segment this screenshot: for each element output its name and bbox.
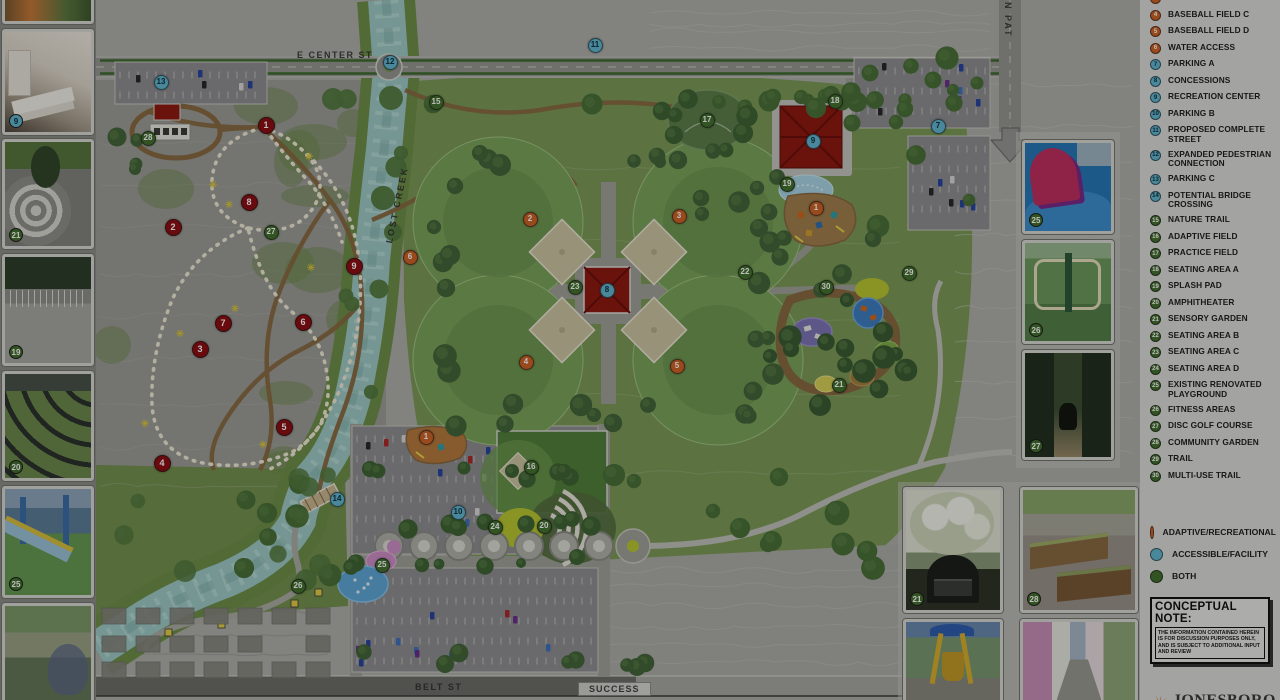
legend-item-16: 16ADAPTIVE FIELD [1150,232,1276,243]
disc-golf-hole-marker-7: 7 [215,315,232,332]
photo-badge: 21 [9,228,23,242]
legend-item-13: 13PARKING C [1150,174,1276,185]
legend-item-number: 20 [1150,298,1161,309]
map-marker-22: 22 [738,265,753,280]
legend-item-label: PARKING A [1168,59,1272,69]
map-marker-20: 20 [537,519,552,534]
photo-adult-changing-room: 9 [2,29,94,135]
disc-golf-hole-marker-6: 6 [295,314,312,331]
legend-item-19: 19SPLASH PAD [1150,281,1276,292]
legend-item-number: 19 [1150,281,1161,292]
map-marker-13: 13 [154,75,169,90]
photo-badge: 21 [910,592,924,606]
legend-item-26: 26FITNESS AREAS [1150,405,1276,416]
legend-item-number: 28 [1150,438,1161,449]
legend-item-label: PARKING C [1168,174,1272,184]
photo-badge: 28 [1027,592,1041,606]
legend-item-number: 27 [1150,421,1161,432]
legend-item-29: 29TRAIL [1150,454,1276,465]
legend-item-label: EXPANDED PEDESTRIAN CONNECTION [1168,150,1272,169]
photo-splash-fountain: 19 [2,254,94,366]
legend-item-22: 22SEATING AREA B [1150,331,1276,342]
photo-garden-landscape [2,603,94,700]
map-marker-24: 24 [488,520,503,535]
photo-community-garden-beds: 28 [1020,487,1138,613]
photo-badge: 26 [1029,323,1043,337]
jonesboro-logo-icon [1150,690,1169,700]
legend-item-number: 16 [1150,232,1161,243]
photo-blossom-trail [1020,619,1138,700]
legend-item-number: 14 [1150,191,1161,202]
photo-renovated-playground: 25 [1022,140,1114,234]
legend-item-17: 17PRACTICE FIELD [1150,248,1276,259]
map-marker-21: 21 [832,378,847,393]
legend-panel: 3BASEBALL FIELD B4BASEBALL FIELD C5BASEB… [1140,0,1280,700]
map-marker-2: 2 [523,212,538,227]
legend-item-label: NATURE TRAIL [1168,215,1272,225]
legend-item-number: 7 [1150,59,1161,70]
photo-badge: 25 [9,577,23,591]
legend-key-label: ADAPTIVE/RECREATIONAL [1163,527,1276,537]
legend-item-label: BASEBALL FIELD C [1168,10,1272,20]
map-marker-6: 6 [403,250,418,265]
legend-item-label: MULTI-USE TRAIL [1168,471,1272,481]
photo-accessible-swing [903,619,1003,700]
map-marker-27: 27 [264,225,279,240]
disc-golf-hole-marker-3: 3 [192,341,209,358]
legend-item-5: 5BASEBALL FIELD D [1150,26,1276,37]
legend-item-11: 11PROPOSED COMPLETE STREET [1150,125,1276,144]
legend-key-dot [1150,548,1163,561]
legend-color-key: ADAPTIVE/RECREATIONALACCESSIBLE/FACILITY… [1150,526,1276,583]
photo-playground-slide: 25 [2,486,94,598]
legend-key-row: ADAPTIVE/RECREATIONAL [1150,526,1276,539]
legend-item-number: 11 [1150,125,1161,136]
legend-item-number: 17 [1150,248,1161,259]
legend-item-label: ADAPTIVE FIELD [1168,232,1272,242]
legend-item-6: 6WATER ACCESS [1150,43,1276,54]
map-marker-29: 29 [902,266,917,281]
map-marker-28: 28 [141,131,156,146]
photo-badge: 9 [9,114,23,128]
legend-item-number: 8 [1150,76,1161,87]
jonesboro-logo-text: JONESBORO [1173,692,1276,700]
legend-item-number: 10 [1150,109,1161,120]
photo-badge: 20 [9,460,23,474]
map-marker-15: 15 [429,95,444,110]
legend-item-number: 22 [1150,331,1161,342]
map-marker-23: 23 [568,280,583,295]
legend-item-label: SEATING AREA B [1168,331,1272,341]
legend-item-label: SEATING AREA D [1168,364,1272,374]
legend-item-label: CONCESSIONS [1168,76,1272,86]
photo-sensory-path: 21 [2,139,94,249]
legend-item-number: 21 [1150,314,1161,325]
legend-item-3: 3BASEBALL FIELD B [1150,0,1276,4]
conceptual-note-body: THE INFORMATION CONTAINED HEREIN IS FOR … [1155,627,1265,659]
legend-key-label: BOTH [1172,571,1196,581]
legend-item-9: 9RECREATION CENTER [1150,92,1276,103]
legend-item-number: 12 [1150,150,1161,161]
legend-item-number: 6 [1150,43,1161,54]
legend-item-label: DISC GOLF COURSE [1168,421,1272,431]
legend-key-label: ACCESSIBLE/FACILITY [1172,549,1268,559]
map-marker-4: 4 [519,355,534,370]
legend-item-number: 3 [1150,0,1161,4]
legend-key-row: BOTH [1150,570,1276,583]
map-marker-5: 5 [670,359,685,374]
legend-item-23: 23SEATING AREA C [1150,347,1276,358]
legend-list: 3BASEBALL FIELD B4BASEBALL FIELD C5BASEB… [1150,0,1276,482]
legend-item-label: POTENTIAL BRIDGE CROSSING [1168,191,1272,210]
legend-item-number: 30 [1150,471,1161,482]
legend-item-label: SPLASH PAD [1168,281,1272,291]
map-marker-1: 1 [419,430,434,445]
legend-item-label: SEATING AREA A [1168,265,1272,275]
photo-fitness-swings: 26 [1022,240,1114,344]
disc-golf-hole-marker-9: 9 [346,258,363,275]
photo-sensory-garden-bower: 21 [903,487,1003,613]
legend-item-12: 12EXPANDED PEDESTRIAN CONNECTION [1150,150,1276,169]
disc-golf-hole-marker-1: 1 [258,117,275,134]
conceptual-note-title: CONCEPTUAL NOTE: [1155,601,1265,625]
legend-item-label: TRAIL [1168,454,1272,464]
legend-item-label: SENSORY GARDEN [1168,314,1272,324]
legend-item-number: 4 [1150,10,1161,21]
photo-disc-golf: 27 [1022,350,1114,460]
conceptual-note: CONCEPTUAL NOTE: THE INFORMATION CONTAIN… [1150,597,1270,664]
legend-item-number: 13 [1150,174,1161,185]
map-marker-3: 3 [672,209,687,224]
legend-item-label: PROPOSED COMPLETE STREET [1168,125,1272,144]
map-marker-19: 19 [780,177,795,192]
map-marker-9: 9 [806,134,821,149]
legend-item-14: 14POTENTIAL BRIDGE CROSSING [1150,191,1276,210]
legend-key-dot [1150,570,1163,583]
map-marker-11: 11 [588,38,603,53]
map-marker-8: 8 [600,283,615,298]
legend-item-number: 29 [1150,454,1161,465]
legend-item-28: 28COMMUNITY GARDEN [1150,438,1276,449]
photo-playground-top [2,0,94,24]
legend-item-30: 30MULTI-USE TRAIL [1150,471,1276,482]
legend-item-label: BASEBALL FIELD B [1168,0,1272,3]
legend-item-number: 5 [1150,26,1161,37]
disc-golf-hole-marker-8: 8 [241,194,258,211]
legend-item-label: FITNESS AREAS [1168,405,1272,415]
legend-item-label: AMPHITHEATER [1168,298,1272,308]
map-marker-18: 18 [828,94,843,109]
legend-item-label: SEATING AREA C [1168,347,1272,357]
legend-item-number: 15 [1150,215,1161,226]
legend-item-number: 26 [1150,405,1161,416]
map-marker-14: 14 [330,492,345,507]
photo-badge: 19 [9,345,23,359]
legend-item-10: 10PARKING B [1150,109,1276,120]
map-marker-12: 12 [383,55,398,70]
legend-item-label: RECREATION CENTER [1168,92,1272,102]
legend-key-dot [1150,526,1154,539]
legend-item-number: 24 [1150,364,1161,375]
legend-item-label: EXISTING RENOVATED PLAYGROUND [1168,380,1272,399]
legend-item-number: 25 [1150,380,1161,391]
disc-golf-hole-marker-5: 5 [276,419,293,436]
map-marker-1: 1 [809,201,824,216]
map-marker-17: 17 [700,113,715,128]
legend-item-label: WATER ACCESS [1168,43,1272,53]
photo-badge: 25 [1029,213,1043,227]
legend-item-label: COMMUNITY GARDEN [1168,438,1272,448]
legend-item-18: 18SEATING AREA A [1150,265,1276,276]
map-marker-25: 25 [375,558,390,573]
legend-item-24: 24SEATING AREA D [1150,364,1276,375]
legend-item-number: 9 [1150,92,1161,103]
legend-item-7: 7PARKING A [1150,59,1276,70]
legend-key-row: ACCESSIBLE/FACILITY [1150,548,1276,561]
map-marker-30: 30 [819,280,834,295]
legend-item-25: 25EXISTING RENOVATED PLAYGROUND [1150,380,1276,399]
legend-item-8: 8CONCESSIONS [1150,76,1276,87]
legend-item-15: 15NATURE TRAIL [1150,215,1276,226]
legend-item-number: 23 [1150,347,1161,358]
legend-item-label: BASEBALL FIELD D [1168,26,1272,36]
legend-item-27: 27DISC GOLF COURSE [1150,421,1276,432]
legend-item-number: 18 [1150,265,1161,276]
map-marker-10: 10 [451,505,466,520]
jonesboro-logo: JONESBORO ARKANSAS [1150,690,1276,700]
legend-item-20: 20AMPHITHEATER [1150,298,1276,309]
photo-amphitheater: 20 [2,371,94,481]
park-master-plan: ✳✳✳ ✳✳✳ ✳✳ [0,0,1280,700]
legend-item-21: 21SENSORY GARDEN [1150,314,1276,325]
legend-item-label: PARKING B [1168,109,1272,119]
disc-golf-hole-marker-2: 2 [165,219,182,236]
photo-badge: 27 [1029,439,1043,453]
disc-golf-hole-marker-4: 4 [154,455,171,472]
legend-item-label: PRACTICE FIELD [1168,248,1272,258]
map-marker-26: 26 [291,579,306,594]
legend-item-4: 4BASEBALL FIELD C [1150,10,1276,21]
map-marker-7: 7 [931,119,946,134]
map-marker-16: 16 [524,460,539,475]
